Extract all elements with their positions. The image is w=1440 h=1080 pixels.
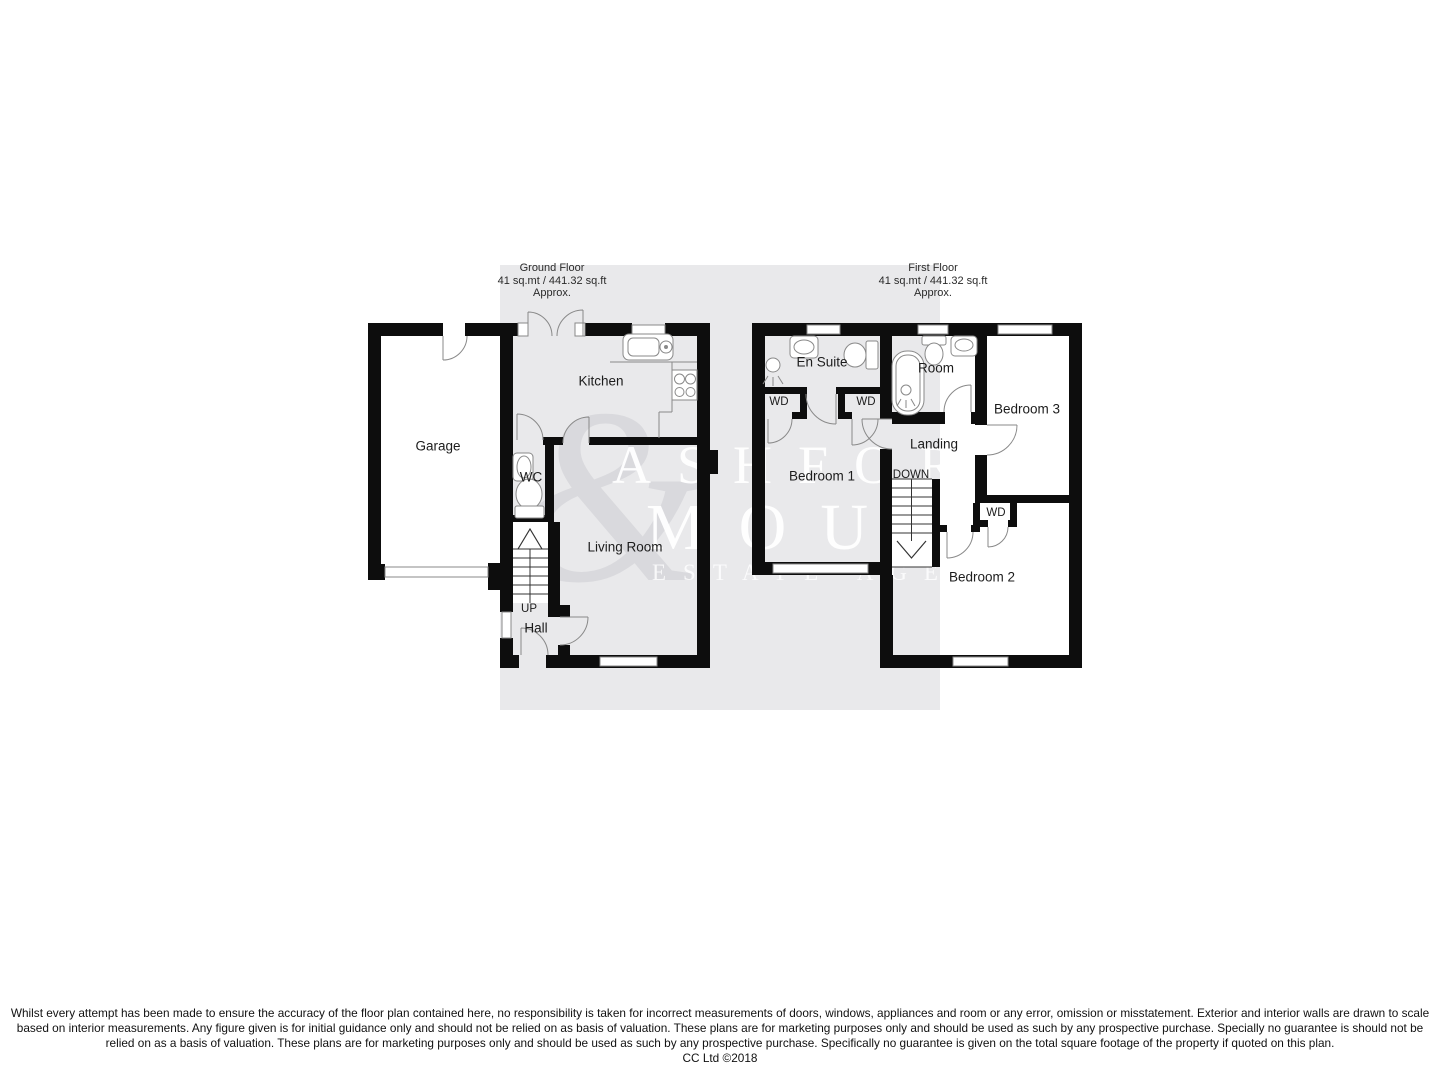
room-label-garage: Garage — [415, 439, 460, 454]
kitchen-window — [632, 325, 665, 334]
wd3-door-swing — [988, 527, 1008, 547]
bedroom-1-door-swing — [862, 419, 892, 449]
first-floor-area: 41 sq.mt / 441.32 sq.ft — [823, 275, 1043, 288]
floorplan-page: & ASHFORD MOULT ESTATE AGENT — [0, 0, 1440, 1080]
wd1-door-swing — [768, 419, 792, 443]
floorplan-drawing — [0, 0, 1440, 1080]
ground-floor-plan — [368, 310, 718, 668]
living-room-window — [600, 657, 657, 666]
bedroom-3-door-swing — [987, 425, 1017, 455]
ground-floor-doors — [443, 310, 589, 655]
hall-window — [502, 612, 511, 638]
entrance-door-post — [518, 323, 528, 336]
ground-floor-area: 41 sq.mt / 441.32 sq.ft — [442, 275, 662, 288]
bath-shower — [901, 385, 911, 395]
first-floor-title: First Floor 41 sq.mt / 441.32 sq.ft Appr… — [823, 262, 1043, 300]
room-label-en-suite: En Suite — [796, 355, 847, 370]
ensuite-toilet — [866, 341, 878, 369]
entrance-door-left-swing — [528, 312, 552, 336]
room-label-wc: WC — [520, 470, 543, 485]
wd-label-2: WD — [856, 396, 875, 408]
room-label-landing: Landing — [910, 437, 958, 452]
bedroom-2-door-swing — [947, 532, 973, 558]
footer: Whilst every attempt has been made to en… — [0, 1006, 1440, 1066]
room-label-bedroom-1: Bedroom 1 — [789, 469, 855, 484]
wd-label-1: WD — [769, 396, 788, 408]
room-label-living-room: Living Room — [587, 540, 662, 555]
hall-living-door-swing — [560, 617, 588, 645]
ensuite-shower — [766, 358, 780, 372]
first-floor-title-name: First Floor — [823, 262, 1043, 275]
wc-fixtures — [513, 453, 544, 518]
room-label-bedroom-3: Bedroom 3 — [994, 402, 1060, 417]
garage-door — [385, 567, 488, 577]
bathroom-fixtures — [892, 336, 977, 415]
room-label-hall: Hall — [524, 621, 547, 636]
wd-label-3: WD — [986, 507, 1005, 519]
disclaimer-text: Whilst every attempt has been made to en… — [0, 1006, 1440, 1051]
room-label-bedroom-2: Bedroom 2 — [949, 570, 1015, 585]
ground-floor-title: Ground Floor 41 sq.mt / 441.32 sq.ft App… — [442, 262, 662, 300]
ground-floor-walls — [368, 323, 718, 668]
kitchen-hall-door-swing — [517, 414, 543, 440]
ground-floor-approx: Approx. — [442, 287, 662, 300]
en-suite-window — [807, 325, 840, 334]
stairs-down — [892, 479, 932, 567]
bedroom-3-window — [998, 325, 1052, 334]
copyright-text: CC Ltd ©2018 — [0, 1051, 1440, 1066]
ground-floor-title-name: Ground Floor — [442, 262, 662, 275]
first-floor-approx: Approx. — [823, 287, 1043, 300]
stairs-up-label: UP — [521, 603, 537, 615]
bedroom-1-window — [773, 564, 868, 573]
room-window — [918, 325, 948, 334]
stairs-down-label: DOWN — [893, 469, 929, 481]
stairs-up — [513, 522, 548, 603]
ensuite-door-swing — [806, 394, 836, 424]
kitchen-living-door-swing — [563, 417, 589, 443]
room-door-swing — [944, 385, 971, 412]
garage-door-swing — [443, 336, 467, 360]
room-label-room: Room — [918, 361, 954, 376]
bedroom-2-window — [953, 657, 1008, 666]
room-label-kitchen: Kitchen — [578, 374, 623, 389]
